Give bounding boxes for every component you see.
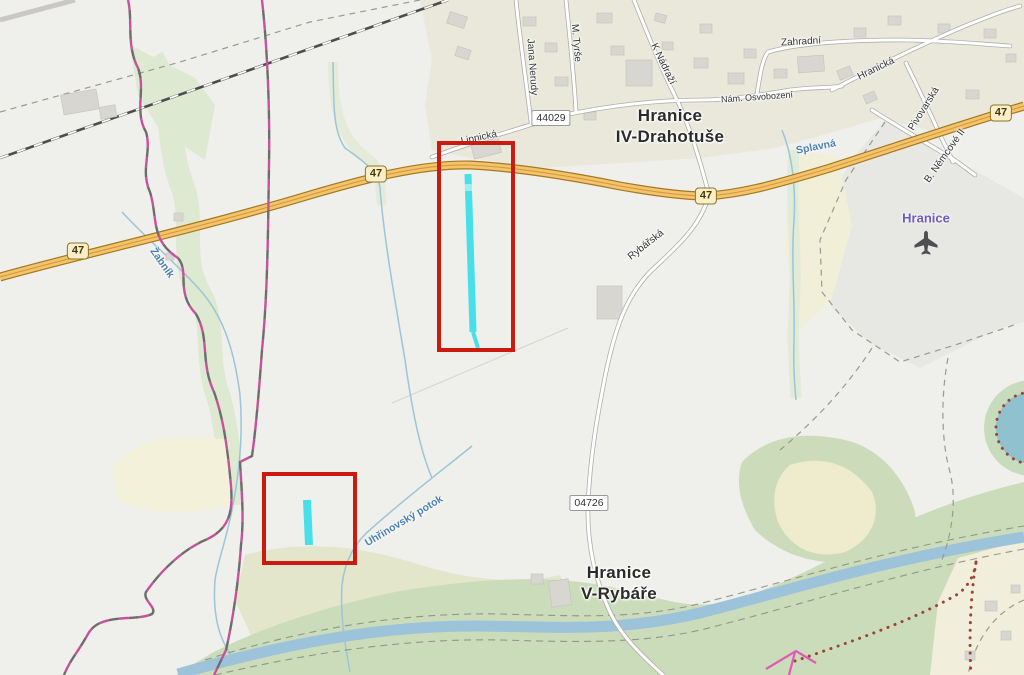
- airport-label: Hranice: [902, 211, 950, 226]
- route-shield-44029: 44029: [531, 110, 570, 126]
- town-label-drahotuse-line2: IV-Drahotuše: [616, 126, 724, 147]
- route-shield-04726: 04726: [569, 495, 608, 511]
- stream-middle: [333, 62, 432, 478]
- town-label-drahotuse: Hranice IV-Drahotuše: [616, 105, 724, 147]
- town-label-drahotuse-line1: Hranice: [616, 105, 724, 126]
- street-label-zahradni: Zahradní: [781, 35, 822, 48]
- route-shield-47-east: 47: [695, 188, 717, 205]
- town-label-rybare: Hranice V-Rybáře: [581, 562, 657, 604]
- landuse-areas: [112, 0, 1024, 675]
- route-shield-47-far-east: 47: [990, 105, 1012, 122]
- railway: [0, 0, 448, 158]
- map-canvas[interactable]: Hranice IV-Drahotuše Hranice V-Rybáře Hr…: [0, 0, 1024, 675]
- route-shield-47-west: 47: [67, 243, 89, 260]
- annotation-rectangle-north: [437, 141, 515, 352]
- town-label-rybare-line2: V-Rybáře: [581, 583, 657, 604]
- farmland-yellow-left: [112, 436, 234, 512]
- annotation-rectangle-south: [262, 472, 357, 565]
- town-label-rybare-line1: Hranice: [581, 562, 657, 583]
- route-shield-47-mid: 47: [365, 166, 387, 183]
